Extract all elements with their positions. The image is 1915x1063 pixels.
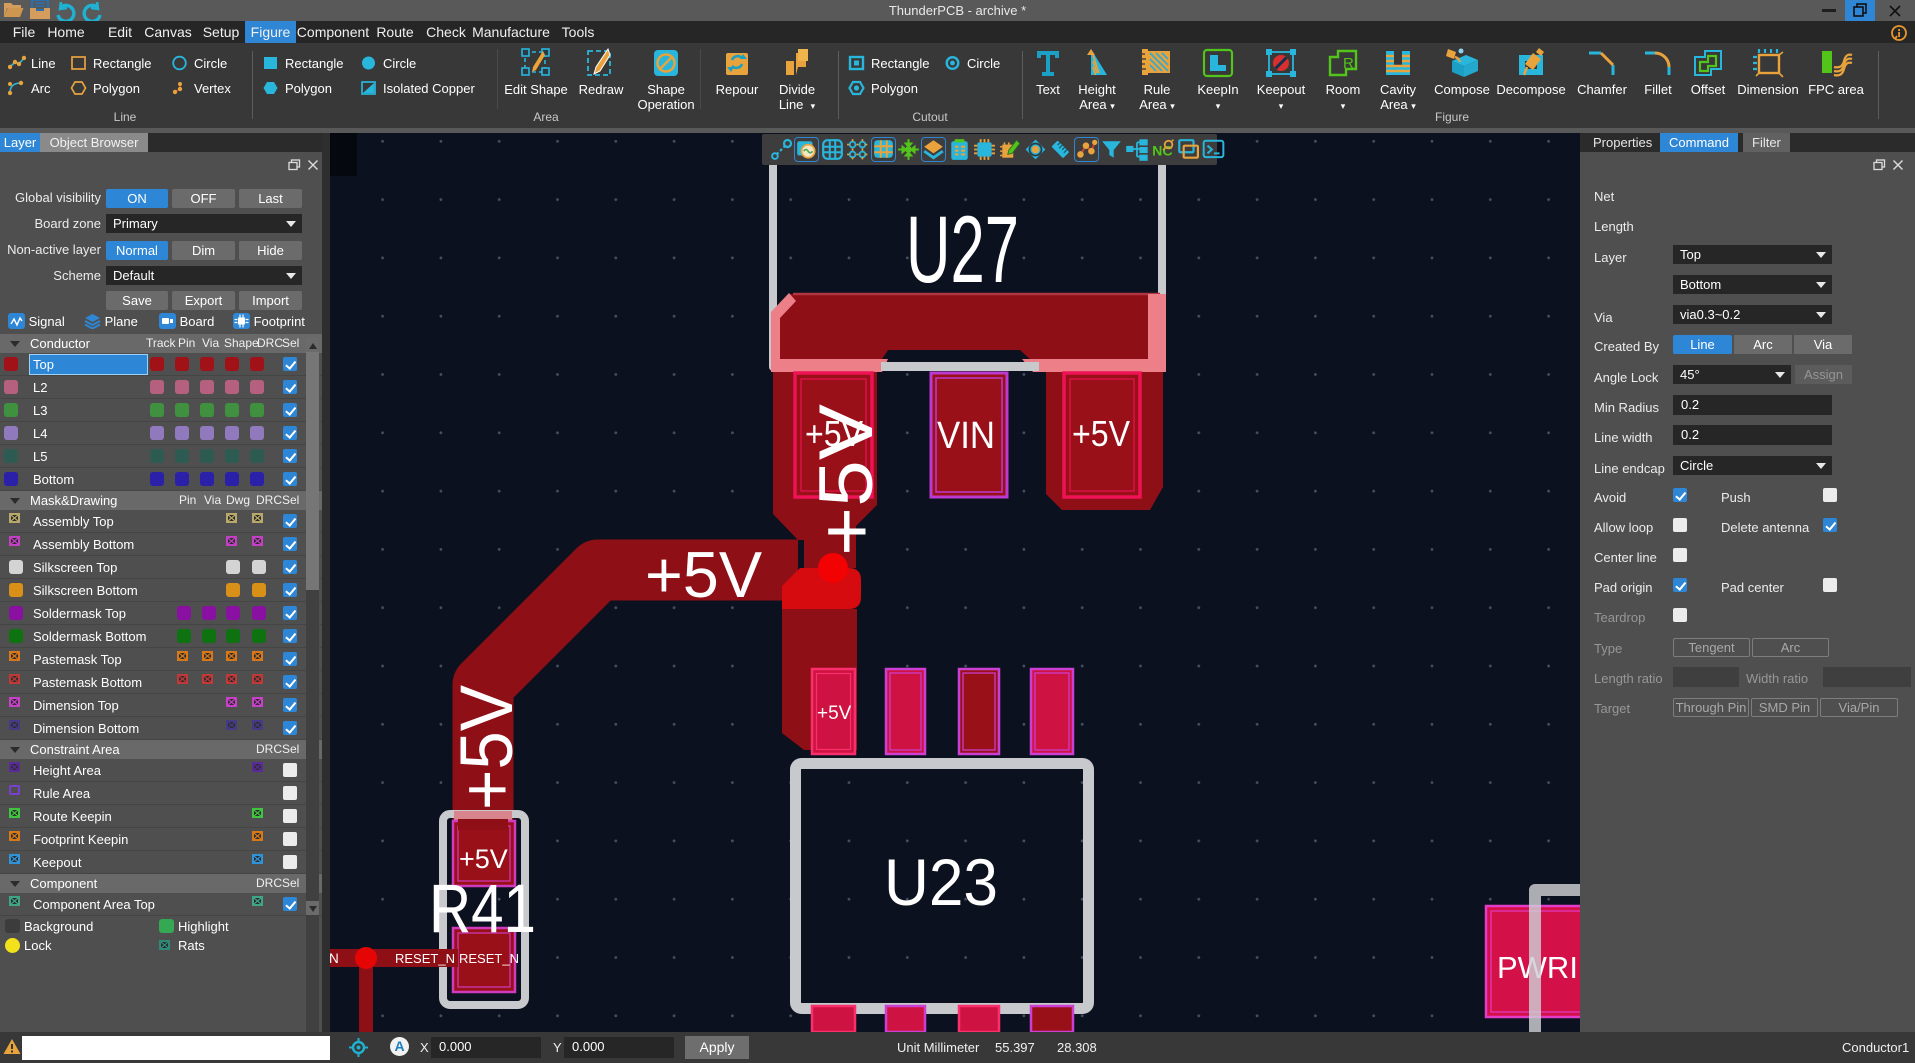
svg-text:+5V: +5V	[645, 538, 763, 611]
svg-text:RESET_N: RESET_N	[395, 951, 455, 966]
svg-text:N: N	[330, 951, 339, 966]
svg-text:NC: NC	[1152, 144, 1173, 160]
svg-text:U27: U27	[906, 197, 1019, 303]
svg-text:R41: R41	[429, 870, 536, 947]
svg-text:+5V: +5V	[804, 404, 889, 556]
svg-text:+5V: +5V	[817, 703, 852, 724]
svg-text:R: R	[1343, 55, 1354, 72]
svg-text:+5V: +5V	[445, 684, 528, 810]
svg-text:VIN: VIN	[937, 415, 995, 457]
svg-text:U23: U23	[884, 845, 998, 919]
svg-text:RESET_N: RESET_N	[459, 951, 519, 966]
svg-text:+5V: +5V	[1072, 413, 1130, 454]
